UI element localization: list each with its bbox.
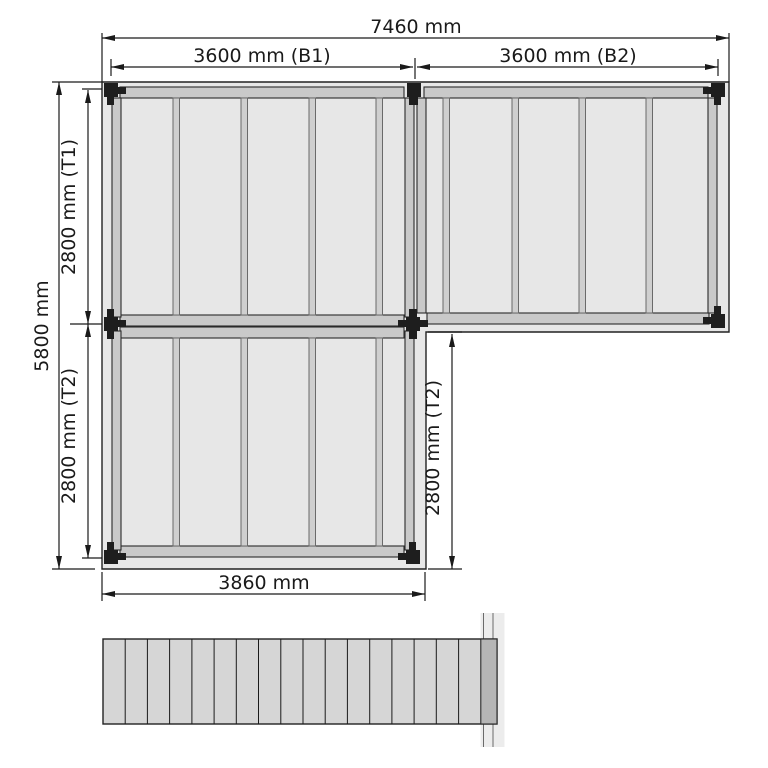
edge-joist: [417, 98, 426, 313]
joist: [241, 98, 248, 315]
dim-t2-left: 2800 mm (T2): [58, 324, 102, 558]
post-tab: [703, 87, 711, 94]
board-strip: [103, 639, 497, 724]
post-tab: [409, 309, 417, 317]
post-tab: [107, 331, 114, 339]
dim-t1: 2800 mm (T1): [58, 89, 102, 324]
deck-framing-plan-page: 7460 mm 3600 mm (B1) 3600 mm (B2) 5800 m…: [0, 0, 768, 768]
post: [711, 314, 725, 328]
joist: [309, 338, 316, 546]
post-tab: [107, 97, 114, 105]
dim-bay-b1-label: 3600 mm (B1): [193, 45, 330, 67]
post-tab: [409, 542, 416, 550]
beam-bottom-t2: [120, 546, 404, 557]
joist: [579, 98, 586, 313]
joist: [443, 98, 450, 313]
post-tab: [714, 97, 721, 105]
edge-joist: [708, 98, 717, 313]
post-tab: [420, 320, 428, 327]
post-tab: [118, 87, 126, 94]
dim-bottom-width: 3860 mm: [102, 572, 425, 601]
beam-top-b2: [424, 87, 708, 98]
dim-bay-b2-label: 3600 mm (B2): [499, 45, 636, 67]
dim-bay-b2: 3600 mm (B2): [417, 45, 718, 76]
post-tab: [107, 542, 114, 550]
post-tab: [398, 320, 406, 327]
post: [406, 550, 420, 564]
dim-bay-b1: 3600 mm (B1): [111, 45, 415, 79]
post: [407, 83, 421, 97]
end-board-dark: [481, 639, 497, 724]
beam-mid-lower: [120, 327, 404, 338]
post-tab: [409, 331, 417, 339]
post-tab: [118, 320, 126, 327]
joist: [241, 338, 248, 546]
dim-total-width-label: 7460 mm: [370, 16, 461, 38]
dim-t2-left-label: 2800 mm (T2): [58, 368, 80, 504]
deck-framing-plan: 7460 mm 3600 mm (B1) 3600 mm (B2) 5800 m…: [0, 0, 768, 768]
post: [104, 550, 118, 564]
beam-bottom-b2: [427, 313, 709, 324]
post-tab: [409, 97, 418, 105]
post-tab: [398, 553, 406, 560]
joist: [646, 98, 653, 313]
post-tab: [714, 306, 721, 314]
dim-bottom-width-label: 3860 mm: [218, 572, 309, 594]
joist: [309, 98, 316, 315]
post-tab: [107, 309, 114, 317]
joist: [173, 98, 180, 315]
deck-boards-elevation: [103, 639, 497, 724]
edge-joist: [112, 98, 121, 317]
post: [104, 317, 118, 331]
post-tab: [703, 317, 711, 324]
dim-t1-label: 2800 mm (T1): [58, 139, 80, 275]
post-tab: [118, 553, 126, 560]
post: [104, 83, 118, 97]
beam-top-b1: [120, 87, 404, 98]
edge-joist: [405, 331, 414, 550]
dim-t2-right-label: 2800 mm (T2): [422, 380, 444, 516]
joist: [376, 338, 383, 546]
edge-joist: [405, 98, 414, 317]
joist: [376, 98, 383, 315]
dim-t2-right: 2800 mm (T2): [422, 332, 462, 569]
post: [406, 317, 420, 331]
joist: [173, 338, 180, 546]
post: [711, 83, 725, 97]
beam-mid-upper: [120, 315, 404, 326]
dim-total-depth-label: 5800 mm: [31, 280, 53, 371]
joist: [512, 98, 519, 313]
edge-joist: [112, 331, 121, 550]
